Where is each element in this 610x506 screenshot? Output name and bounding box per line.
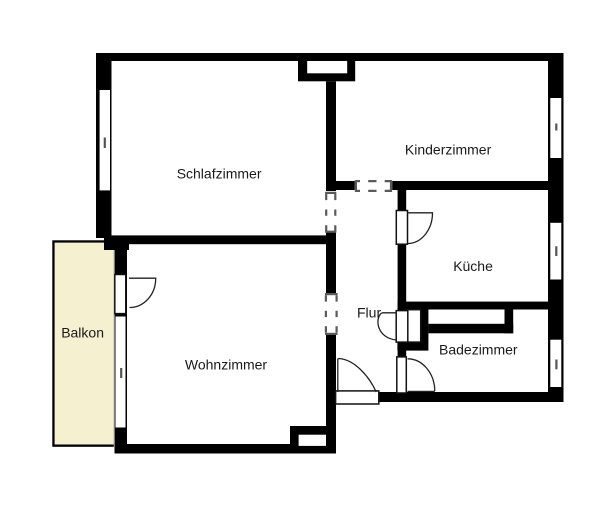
svg-text:Schlafzimmer: Schlafzimmer (177, 166, 262, 182)
svg-text:Balkon: Balkon (61, 325, 104, 341)
svg-text:Badezimmer: Badezimmer (439, 342, 518, 358)
svg-text:Kinderzimmer: Kinderzimmer (405, 141, 492, 157)
svg-text:Küche: Küche (453, 258, 493, 274)
svg-text:Wohnzimmer: Wohnzimmer (185, 357, 268, 373)
svg-text:Flur: Flur (357, 305, 381, 321)
